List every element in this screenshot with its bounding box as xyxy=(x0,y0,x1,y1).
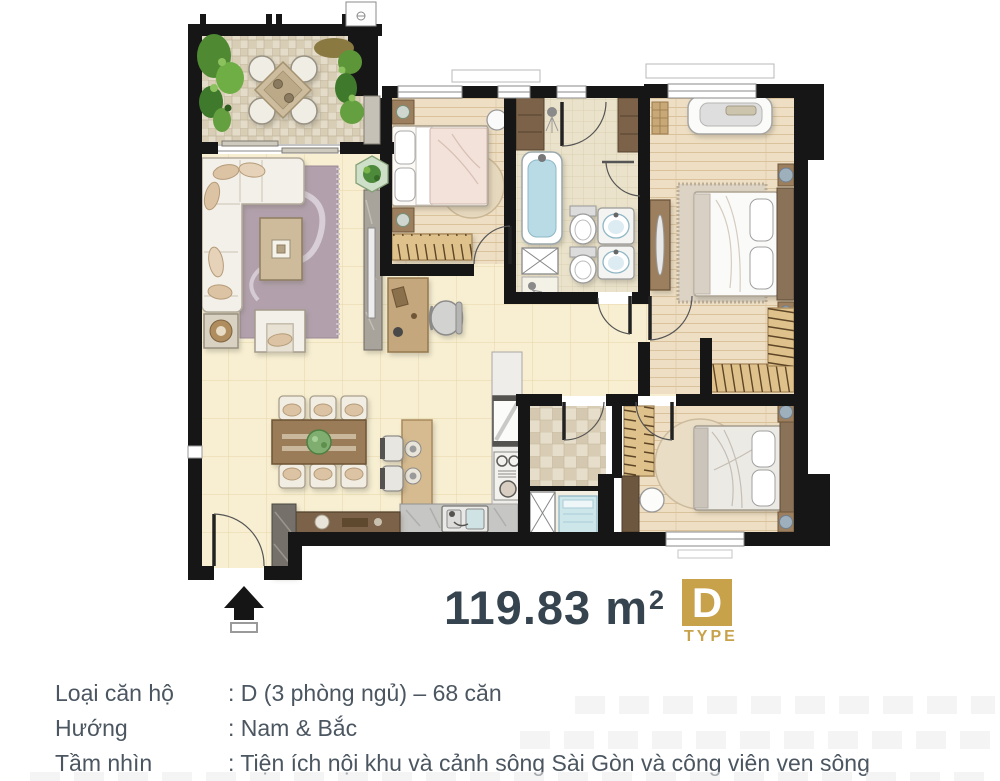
detail-label: Hướng xyxy=(55,711,228,746)
pouf xyxy=(640,488,664,512)
page: 119.83 m2 D TYPE Loại căn hộ : D (3 phòn… xyxy=(0,0,1000,781)
detail-value: : Tiện ích nội khu và cảnh sông Sài Gòn … xyxy=(228,746,985,781)
closet xyxy=(516,98,544,150)
coffee-table xyxy=(260,218,302,280)
armchair xyxy=(255,310,305,352)
office-chair xyxy=(430,301,462,335)
apartment-details: Loại căn hộ : D (3 phòng ngủ) – 68 căn H… xyxy=(55,676,985,781)
washer xyxy=(530,492,555,534)
water-heater xyxy=(559,496,597,534)
balcony xyxy=(249,56,317,124)
detail-row-type: Loại căn hộ : D (3 phòng ngủ) – 68 căn xyxy=(55,676,985,711)
detail-value: : D (3 phòng ngủ) – 68 căn xyxy=(228,676,985,711)
bathroom2-floor xyxy=(528,406,606,488)
bed xyxy=(694,422,794,514)
sink-icon xyxy=(598,208,634,279)
bed xyxy=(392,126,488,206)
stove xyxy=(494,452,521,500)
bathtub xyxy=(522,152,562,244)
washer xyxy=(522,248,558,274)
dresser xyxy=(650,200,670,290)
dining-table xyxy=(272,420,366,464)
type-badge-letter: D xyxy=(682,579,732,626)
detail-row-view: Tầm nhìn : Tiện ích nội khu và cảnh sông… xyxy=(55,746,985,781)
type-badge-label: TYPE xyxy=(684,628,734,646)
balcony-door-panel xyxy=(364,96,380,144)
kitchen-sink xyxy=(442,506,488,532)
area-label: 119.83 m2 xyxy=(444,580,664,635)
detail-label: Tầm nhìn xyxy=(55,746,228,781)
floor-plan xyxy=(0,0,1000,781)
side-table xyxy=(204,314,238,348)
entrance-arrow-icon xyxy=(224,586,264,632)
tv-console xyxy=(364,190,382,350)
daybed xyxy=(688,96,772,134)
kitchen-island xyxy=(402,420,432,505)
luggage-bench xyxy=(392,234,472,260)
area-value: 119.83 m xyxy=(444,581,648,634)
detail-label: Loại căn hộ xyxy=(55,676,228,711)
detail-row-direction: Hướng : Nam & Bắc xyxy=(55,711,985,746)
type-badge: D TYPE xyxy=(682,579,734,646)
dining-area xyxy=(272,396,367,488)
ac-ledge xyxy=(346,2,376,26)
area-superscript: 2 xyxy=(649,585,665,615)
detail-value: : Nam & Bắc xyxy=(228,711,985,746)
bed xyxy=(694,188,794,300)
